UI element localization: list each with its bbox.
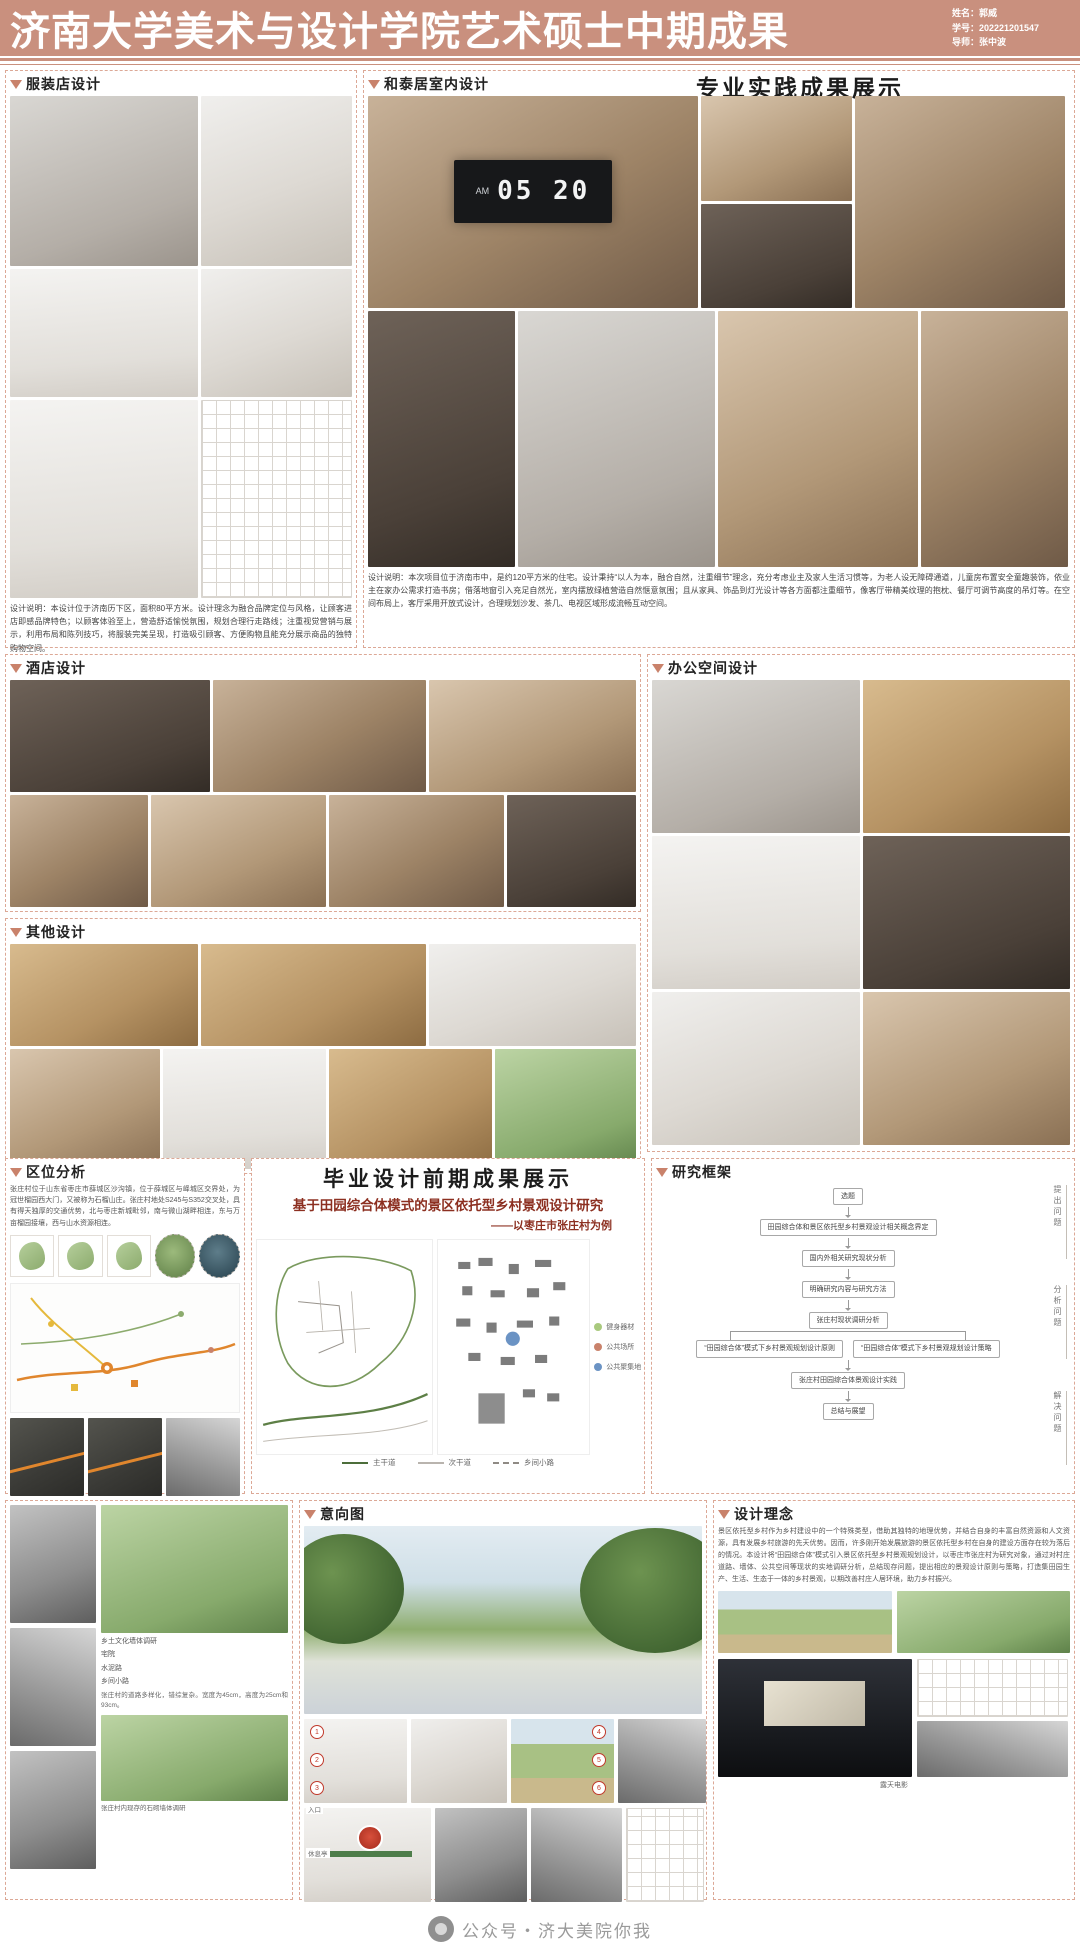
photo-office-bookshelf [863,680,1071,833]
section-marker-icon [304,1510,316,1519]
photo-hotel-lounge [429,680,636,792]
road-network-diagram [10,1283,240,1413]
photo-field-render-2 [897,1591,1071,1653]
arrow-down-icon [848,1391,849,1401]
mini-route-map [626,1808,704,1902]
phase-label-solution: 解决问题 [1052,1391,1067,1465]
hotel-photo-grid-top [10,680,636,792]
section-label-clothing: 服装店设计 [26,74,101,94]
village-buildings-svg [438,1240,590,1454]
section-other-designs: 其他设计 [5,918,641,1174]
photo-executive-office [652,680,860,833]
photo-guestroom-1 [10,795,148,907]
photo-kitchen-bar [518,311,715,567]
sketch-plan-2 [411,1719,507,1803]
poster-title: 济南大学美术与设计学院艺术硕士中期成果 [10,0,789,57]
section-hotel: 酒店设计 [5,654,641,912]
phase-label-question: 提出问题 [1052,1185,1067,1259]
sketch-row: 1 2 3 4 5 6 [304,1719,702,1803]
flow-parallel-row: “田园综合体”模式下乡村景观规划设计原则 “田园综合体”模式下乡村景观规划设计策… [696,1340,999,1357]
photo-open-office [652,836,860,989]
legend-item: 健身器材 [594,1322,644,1332]
photo-study-desk [921,311,1068,567]
watermark-text: 公众号・济大美院你我 [462,1917,652,1942]
section-label-hetai: 和泰居室内设计 [384,74,489,94]
clock-am-label: AM [476,186,490,196]
photo-store-fitting [10,269,198,397]
photo-meeting-room [863,992,1071,1145]
blue-dot-icon [594,1363,602,1371]
hetai-photo-grid-top: AM 05 20 [368,96,1070,308]
photo-bw-alley-1 [10,1505,96,1623]
flow-node-survey: 张庄村现状调研分析 [809,1312,888,1329]
concept-description: 景区依托型乡村作为乡村建设中的一个特殊类型，借助其独特的地理优势，并结合自身的丰… [718,1526,1070,1585]
photo-laundry-closet [368,311,515,567]
survey-caption: 水泥路 [101,1662,288,1675]
photo-bedroom-tall [855,96,1066,308]
wall-clock-display: AM 05 20 [454,160,612,224]
photo-open-air-movie [718,1659,912,1777]
photo-suite-living [151,795,326,907]
section-label-hotel: 酒店设计 [26,658,86,678]
legend-label: 健身器材 [606,1322,634,1332]
green-dot-icon [594,1323,602,1331]
mini-map-thumb [917,1659,1068,1717]
flow-node-practice: 张庄村田园综合体景观设计实践 [791,1372,905,1389]
section-label-location: 区位分析 [26,1162,86,1182]
photo-library-interior [10,944,198,1046]
marker-badge-4: 4 [592,1725,606,1739]
survey-caption: 乡间小路 [101,1675,288,1688]
clock-time: 05 20 [497,176,590,206]
thesis-title: 基于田园综合体模式的景区依托型乡村景观设计研究 [256,1197,640,1215]
photo-bw-alley-2 [10,1628,96,1746]
photo-white-hall [163,1049,326,1169]
section-graduation-preview: 毕业设计前期成果展示 基于田园综合体模式的景区依托型乡村景观设计研究 ——以枣庄… [251,1158,645,1494]
aerial-inset-photo-2 [199,1234,240,1278]
arrow-down-icon [848,1269,849,1279]
gate-emblem-icon [357,1825,383,1851]
section-marker-icon [652,664,664,673]
framework-flowchart: 选题 田园综合体和景区依托型乡村景观设计相关概念界定 国内外相关研究现状分析 明… [656,1184,1070,1420]
other-photo-grid-top [10,944,636,1046]
section-marker-icon [10,928,22,937]
legend-label: 主干道 [373,1457,396,1468]
account-logo-icon [428,1916,454,1942]
photo-store-display [201,269,351,397]
section-marker-icon [10,80,22,89]
photo-villagers-2 [531,1808,623,1902]
light-line-swatch [418,1462,444,1464]
photo-reception-counter [10,1049,160,1169]
photo-park-rendering [304,1526,702,1714]
callout-tag-pavilion: 休息亭 [306,1848,330,1858]
arrow-down-icon [848,1300,849,1310]
province-map-1 [10,1235,54,1277]
section-marker-icon [368,80,380,89]
section-marker-icon [718,1510,730,1519]
office-photo-grid [652,680,1070,1145]
legend-label: 次干道 [449,1457,472,1468]
satellite-photo-2 [88,1418,162,1496]
marker-badge-1: 1 [310,1725,324,1739]
legend-label: 乡间小路 [524,1457,554,1468]
photo-hotel-lobby [213,680,426,792]
satellite-photo-row [10,1418,240,1496]
student-id: 学号：202221201547 [952,21,1070,35]
survey-caption: 乡土文化墙体调研 [101,1635,288,1648]
callout-tag-entrance: 入口 [306,1804,323,1814]
legend-item: 主干道 [342,1457,396,1468]
section-hetai-interior: 和泰居室内设计 专业实践成果展示 AM 05 20 [363,70,1075,648]
salmon-dot-icon [594,1343,602,1351]
survey-note-walls: 张庄村内现存的石砌墙体调研 [101,1804,288,1814]
watermark: 公众号・济大美院你我 [5,1916,1075,1942]
survey-caption: 宅院 [101,1648,288,1661]
clothing-description: 设计说明：本设计位于济南历下区，面积80平方米。设计理念为融合品牌定位与风格，让… [10,602,352,655]
arrow-down-icon [848,1207,849,1217]
marker-badge-5: 5 [592,1753,606,1767]
aerial-inset-photo-1 [155,1234,196,1278]
marker-badge-3: 3 [310,1781,324,1795]
section-research-framework: 研究框架 选题 田园综合体和景区依托型乡村景观设计相关概念界定 国内外相关研究现… [651,1158,1075,1494]
flow-node-methods: 明确研究内容与研究方法 [802,1281,895,1298]
legend-item: 乡间小路 [493,1457,554,1468]
road-legend: 主干道 次干道 乡间小路 [256,1457,640,1468]
section-label-intention: 意向图 [320,1504,365,1524]
village-boundary-svg [257,1240,432,1454]
photo-field-render-1 [718,1591,892,1653]
legend-item: 次干道 [418,1457,472,1468]
floorplan-drawing [201,400,351,598]
photo-bookstore [201,944,426,1046]
marker-badge-2: 2 [310,1753,324,1767]
point-legend: 健身器材 公共场所 公共聚集地 [594,1239,644,1455]
village-buildings-map [437,1239,591,1455]
solid-line-swatch [342,1462,368,1464]
dashed-line-swatch [493,1462,519,1464]
hetai-photo-grid-bottom [368,311,1070,567]
photo-stone-wall-render [101,1505,288,1633]
photo-guestroom-2 [329,795,504,907]
province-map-2 [58,1235,102,1277]
header-rule-thick [0,58,1080,61]
gate-roof-shape [323,1851,412,1857]
hetai-description: 设计说明：本次项目位于济南市中，是约120平方米的住宅。设计秉持“以人为本，融合… [368,571,1070,611]
marker-badge-6: 6 [592,1781,606,1795]
photo-playroom [495,1049,636,1169]
graduation-heading: 毕业设计前期成果展示 [256,1163,640,1193]
concept-thumb-row [718,1591,1070,1653]
photo-manager-office [652,992,860,1145]
movie-photo-caption: 露天电影 [718,1780,1070,1790]
section-intention: 意向图 1 2 3 4 5 6 [299,1500,707,1900]
province-map-row [10,1234,240,1278]
clothing-photo-grid [10,96,352,598]
photo-store-shelves [201,96,351,266]
province-map-3 [107,1235,151,1277]
section-marker-icon [10,664,22,673]
flow-split-connector [730,1331,965,1340]
concept-bottom-row [718,1659,1070,1777]
road-network-svg [11,1284,239,1410]
legend-label: 公共聚集地 [606,1362,641,1372]
flow-node-summary: 总结与展望 [823,1403,874,1420]
section-label-office: 办公空间设计 [668,658,758,678]
section-marker-icon [10,1168,22,1177]
section-design-concept: 设计理念 景区依托型乡村作为乡村建设中的一个特殊类型，借助其独特的地理优势，并结… [713,1500,1075,1900]
survey-caption-list: 乡土文化墙体调研 宅院 水泥路 乡间小路 [101,1635,288,1688]
arrow-down-icon [848,1360,849,1370]
section-site-survey: 乡土文化墙体调研 宅院 水泥路 乡间小路 张庄村的道路多样化，错综复杂。宽度为4… [5,1500,293,1900]
photo-storefront [329,1049,492,1169]
satellite-photo-3 [166,1418,240,1496]
section-label-framework: 研究框架 [672,1162,732,1182]
legend-item: 公共场所 [594,1342,644,1352]
photo-office-study [863,836,1071,989]
poster-page: 济南大学美术与设计学院艺术硕士中期成果 姓名：郭威 学号：20222120154… [0,0,1080,1943]
section-office-space: 办公空间设计 [647,654,1075,1152]
photo-bw-alley-3 [10,1751,96,1869]
survey-note-roads: 张庄村的道路多样化，错综复杂。宽度为45cm，高度为25cm和93cm。 [101,1691,288,1711]
photo-kids-area [429,944,636,1046]
flow-node-concepts: 田园综合体和景区依托型乡村景观设计相关概念界定 [760,1219,937,1236]
location-description: 张庄村位于山东省枣庄市薛城区沙沟镇，位于薛城区与峄城区交界处，为冠世榴园西大门，… [10,1184,240,1229]
arrow-down-icon [848,1238,849,1248]
satellite-photo-1 [10,1418,84,1496]
flow-node-literature: 国内外相关研究现状分析 [802,1250,895,1267]
photo-store-entry [10,400,198,598]
section-marker-icon [656,1168,668,1177]
photo-banquet-hall [10,680,210,792]
legend-item: 公共聚集地 [594,1362,644,1372]
section-clothing-store: 服装店设计 设计说明：本设计位于济南历下区，面积80平方米。设计理念为融合品牌定… [5,70,357,648]
photo-dining-area [701,96,852,201]
student-name: 姓名：郭威 [952,6,1070,20]
header-band: 济南大学美术与设计学院艺术硕士中期成果 姓名：郭威 学号：20222120154… [0,0,1080,56]
phase-label-analysis: 分析问题 [1052,1285,1067,1359]
flow-node-principles: “田园综合体”模式下乡村景观规划设计原则 [696,1340,843,1357]
photo-sofa-wall [718,311,918,567]
section-label-concept: 设计理念 [734,1504,794,1524]
advisor-name: 导师：张中波 [952,35,1070,49]
flow-node-strategies: “田园综合体”模式下乡村景观规划设计策略 [853,1340,1000,1357]
section-location-analysis: 区位分析 张庄村位于山东省枣庄市薛城区沙沟镇，位于薛城区与峄城区交界处，为冠世榴… [5,1158,245,1494]
student-info: 姓名：郭威 学号：202221201547 导师：张中波 [952,6,1070,49]
photo-survey-people [618,1719,706,1803]
other-photo-grid-bottom [10,1049,636,1169]
village-boundary-map [256,1239,433,1455]
gate-row: 入口 休息亭 [304,1808,702,1902]
village-maps: 健身器材 公共场所 公共聚集地 [256,1239,640,1451]
photo-crowd [917,1721,1068,1777]
section-label-other: 其他设计 [26,922,86,942]
photo-villagers-1 [435,1808,527,1902]
photo-hotel-corridor [507,795,635,907]
legend-label: 公共场所 [606,1342,634,1352]
photo-living-room: AM 05 20 [368,96,698,308]
photo-wall-garden-render [101,1715,288,1801]
photo-hallway [701,204,852,309]
thesis-subtitle: ——以枣庄市张庄村为例 [256,1217,640,1233]
hotel-photo-grid-bottom [10,795,636,907]
photo-store-overview [10,96,198,266]
flow-node-topic: 选题 [833,1188,863,1205]
